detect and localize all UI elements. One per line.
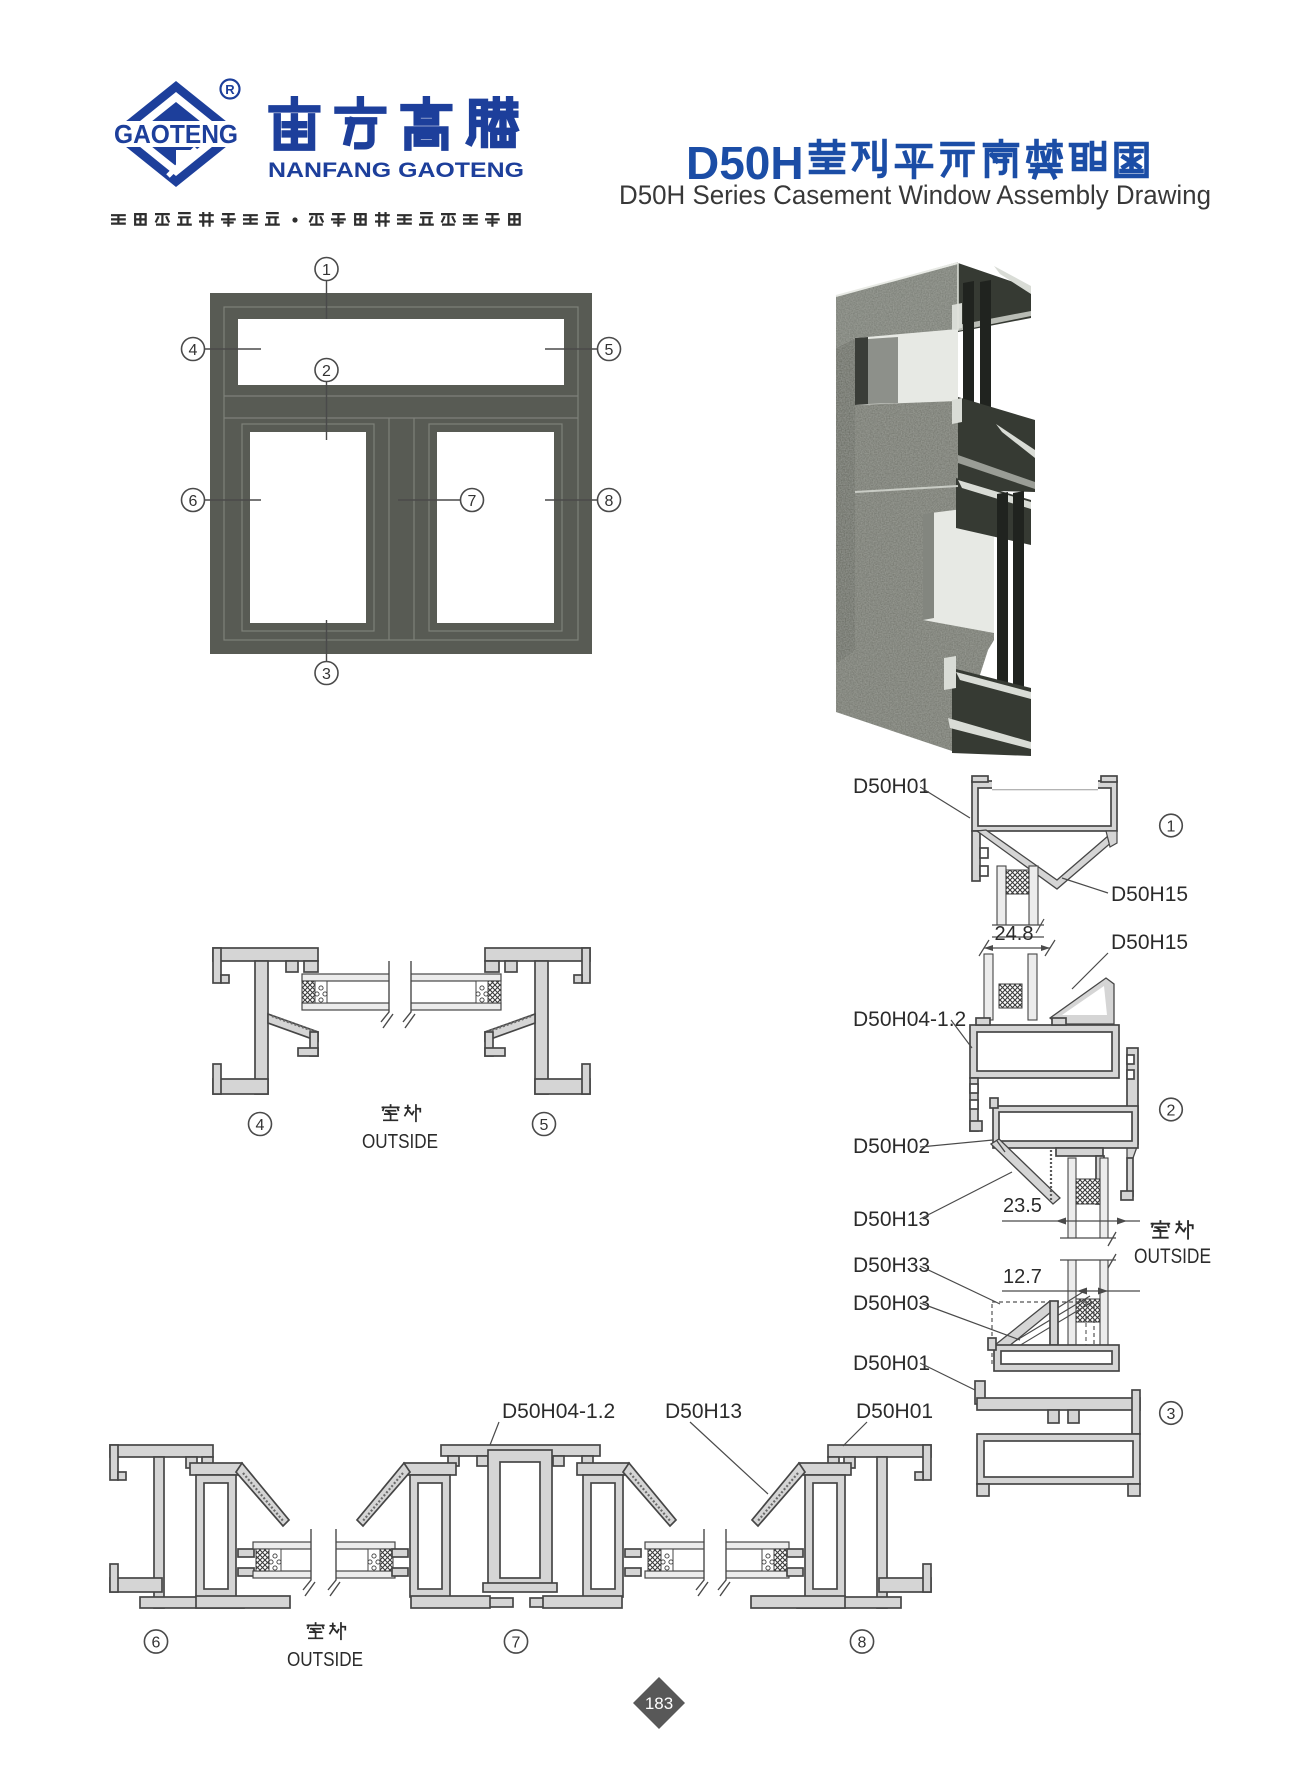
svg-text:NANFANG GAOTENG: NANFANG GAOTENG — [268, 159, 524, 182]
svg-text:5: 5 — [540, 1117, 549, 1134]
svg-text:2: 2 — [1167, 1102, 1176, 1119]
svg-text:7: 7 — [468, 493, 477, 510]
svg-text:D50H33: D50H33 — [853, 1254, 930, 1277]
svg-text:4: 4 — [189, 342, 198, 359]
svg-text:3: 3 — [1167, 1406, 1176, 1423]
svg-text:D50H13: D50H13 — [853, 1208, 930, 1231]
svg-text:D50H15: D50H15 — [1111, 931, 1188, 954]
svg-text:4: 4 — [256, 1117, 265, 1134]
svg-text:R: R — [225, 82, 235, 97]
svg-text:D50H04-1.2: D50H04-1.2 — [502, 1400, 615, 1423]
svg-text:OUTSIDE: OUTSIDE — [287, 1649, 363, 1671]
svg-text:D50H03: D50H03 — [853, 1292, 930, 1315]
svg-text:1: 1 — [1167, 818, 1176, 835]
svg-text:OUTSIDE: OUTSIDE — [362, 1131, 438, 1153]
svg-text:D50H01: D50H01 — [856, 1400, 933, 1423]
svg-text:D50H Series Casement Window As: D50H Series Casement Window Assembly Dra… — [619, 180, 1211, 210]
svg-text:6: 6 — [152, 1634, 161, 1651]
svg-text:D50H15: D50H15 — [1111, 883, 1188, 906]
svg-text:183: 183 — [645, 1694, 673, 1713]
svg-text:2: 2 — [322, 363, 331, 380]
svg-text:OUTSIDE: OUTSIDE — [1134, 1245, 1211, 1268]
svg-text:GAOTENG: GAOTENG — [114, 119, 238, 149]
svg-text:D50H13: D50H13 — [665, 1400, 742, 1423]
svg-text:8: 8 — [858, 1634, 867, 1651]
svg-text:D50H01: D50H01 — [853, 775, 930, 798]
svg-text:5: 5 — [605, 342, 614, 359]
svg-text:D50H02: D50H02 — [853, 1135, 930, 1158]
svg-text:3: 3 — [322, 666, 331, 683]
svg-text:23.5: 23.5 — [1003, 1195, 1042, 1217]
svg-text:7: 7 — [512, 1634, 521, 1651]
svg-text:6: 6 — [189, 493, 198, 510]
svg-text:D50H01: D50H01 — [853, 1352, 930, 1375]
svg-text:D50H04-1.2: D50H04-1.2 — [853, 1008, 966, 1031]
svg-text:1: 1 — [322, 262, 331, 279]
svg-text:24.8: 24.8 — [995, 923, 1034, 945]
svg-text:8: 8 — [605, 493, 614, 510]
svg-text:12.7: 12.7 — [1003, 1266, 1042, 1288]
